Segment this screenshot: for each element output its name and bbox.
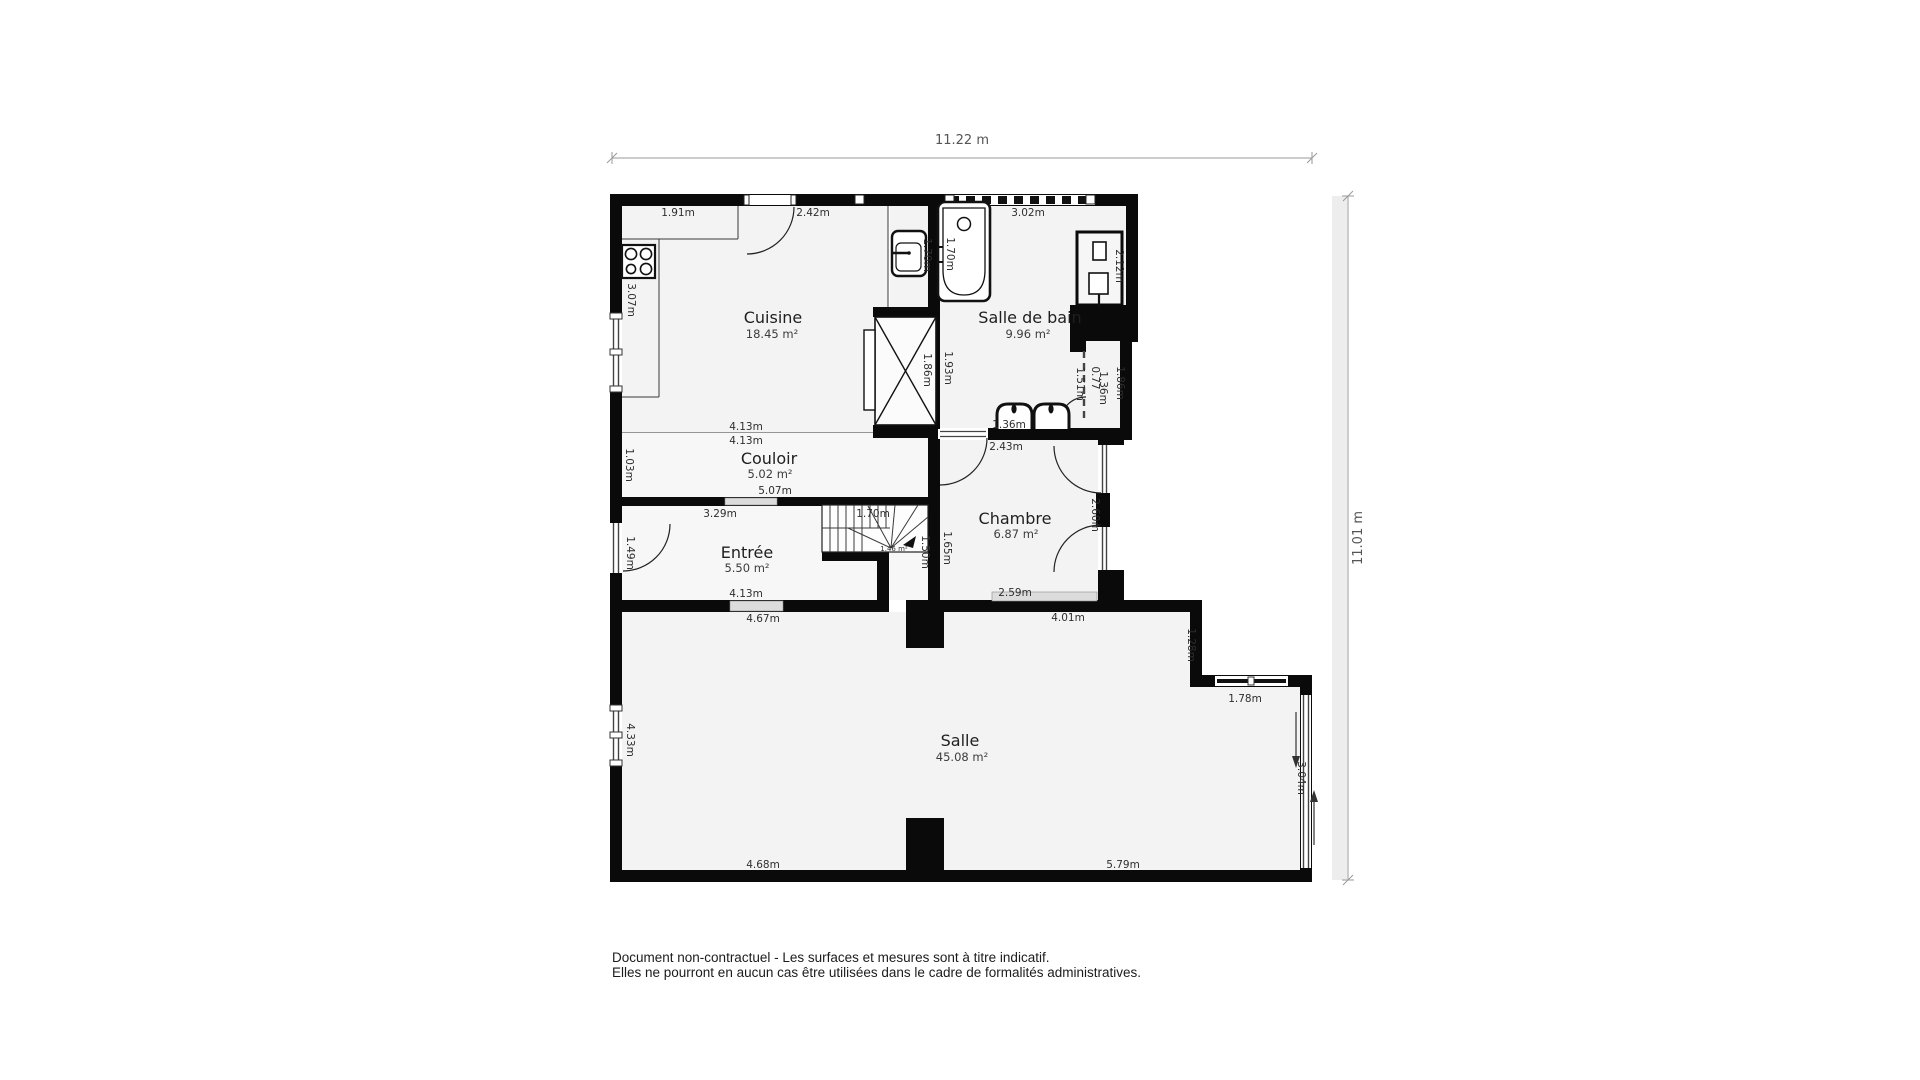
hand-basin-icon — [892, 231, 926, 276]
room-name-cuisine: Cuisine — [744, 308, 803, 327]
dim-salle-bottom-left: 4.68m — [746, 859, 780, 871]
dim-entree-top: 3.29m — [703, 508, 737, 520]
room-name-entree: Entrée — [721, 543, 773, 562]
disclaimer-line-1: Document non-contractuel - Les surfaces … — [612, 950, 1049, 965]
room-area-entree: 5.50 m² — [724, 561, 769, 575]
dim-step-vertical: 1.28m — [1185, 628, 1197, 662]
dim-stairs-area: 1.46 m² — [880, 545, 908, 553]
dim-salle-bottom-right: 5.79m — [1106, 859, 1140, 871]
room-area-chambre: 6.87 m² — [993, 527, 1038, 541]
dim-entree-left: 1.49m — [624, 536, 636, 570]
room-name-salle: Salle — [941, 731, 980, 750]
dim-salle-right: 3.04m — [1295, 761, 1307, 795]
room-name-salle-de-bain: Salle de bain — [978, 308, 1081, 327]
dim-wc-a: 1.51m — [1074, 367, 1086, 401]
room-area-cuisine: 18.45 m² — [746, 327, 798, 341]
floorplan-page: 11.22 m 11.01 m Cuisine 18.45 m² Salle d… — [0, 0, 1920, 1080]
room-floors — [622, 206, 1300, 870]
dim-wc-right: 1.86m — [1114, 366, 1126, 400]
dim-bath-left: 1.93m — [942, 351, 954, 385]
dim-cuisine-bottom-1: 4.13m — [729, 421, 763, 433]
overall-height-label: 11.01 m — [1351, 511, 1366, 565]
dim-chambre-left: 1.65m — [941, 531, 953, 565]
dim-cuisine-bottom-2: 4.13m — [729, 435, 763, 447]
disclaimer-line-2: Elles ne pourront en aucun cas être util… — [612, 965, 1141, 980]
dim-cuisine-top-left: 1.91m — [661, 207, 695, 219]
dim-couloir-left: 1.03m — [623, 448, 635, 482]
room-area-couloir: 5.02 m² — [747, 467, 792, 481]
dim-bath-sink: 1.36m — [992, 419, 1026, 431]
dim-bath-top: 3.02m — [1011, 207, 1045, 219]
floorplan-drawing: 11.22 m 11.01 m Cuisine 18.45 m² Salle d… — [0, 0, 1920, 1080]
dim-stairs-width: 1.70m — [856, 508, 890, 520]
dim-washer: 2.12m — [1113, 249, 1125, 283]
dim-cuisine-left: 3.07m — [625, 283, 637, 317]
dim-entree-bottom: 4.13m — [729, 588, 763, 600]
dim-salle-left: 4.33m — [624, 723, 636, 757]
room-name-chambre: Chambre — [979, 509, 1052, 528]
dim-cuisine-top-right: 2.42m — [796, 207, 830, 219]
disclaimer: Document non-contractuel - Les surfaces … — [612, 950, 1141, 980]
dim-step-window: 1.78m — [1228, 693, 1262, 705]
dim-wc-c: 1.36m — [1097, 371, 1109, 405]
dim-stairs-depth: 1.50m — [919, 535, 931, 569]
dim-salle-top-right: 4.01m — [1051, 612, 1085, 624]
room-area-salle-de-bain: 9.96 m² — [1005, 327, 1050, 341]
dim-chambre-right: 2.60m — [1089, 498, 1101, 532]
dim-bathtub: 1.70m — [944, 237, 956, 271]
room-name-couloir: Couloir — [741, 449, 798, 468]
dim-chambre-bottom: 2.59m — [998, 587, 1032, 599]
dim-salle-top-left: 4.67m — [746, 613, 780, 625]
stove-icon — [622, 245, 655, 278]
dim-duct: 1.86m — [921, 353, 933, 387]
overall-width-label: 11.22 m — [935, 133, 989, 148]
dim-nook: 1.70m — [921, 238, 933, 272]
dim-chambre-top: 2.43m — [989, 441, 1023, 453]
room-area-salle: 45.08 m² — [936, 750, 988, 764]
dim-couloir-bottom: 5.07m — [758, 485, 792, 497]
